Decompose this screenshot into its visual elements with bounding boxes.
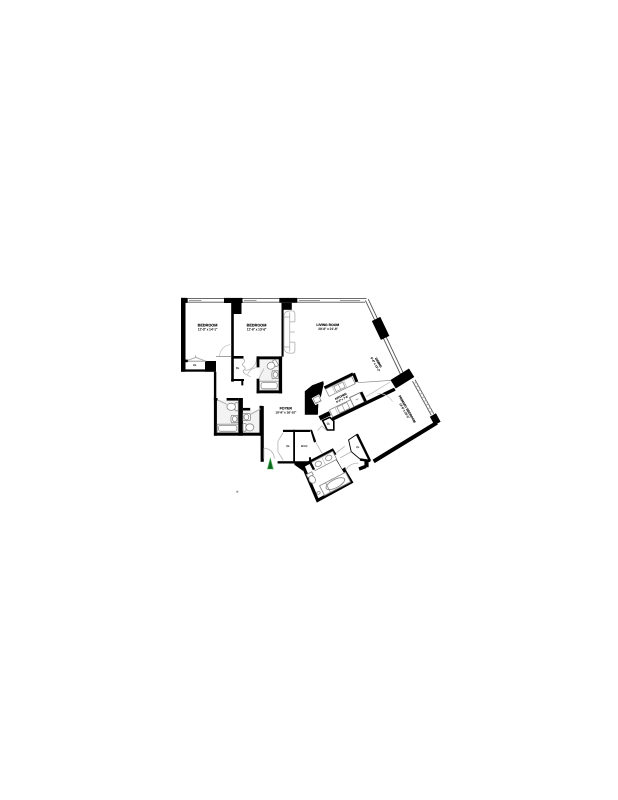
svg-text:20'-6" x 21'-6": 20'-6" x 21'-6" xyxy=(318,327,338,331)
svg-text:CL: CL xyxy=(236,367,240,370)
svg-text:12'-0" x 14'-1": 12'-0" x 14'-1" xyxy=(198,327,218,331)
svg-text:10'-8" x 16'-10": 10'-8" x 16'-10" xyxy=(275,411,296,415)
svg-text:CL: CL xyxy=(193,364,197,367)
svg-text:W.I.C: W.I.C xyxy=(301,445,307,448)
svg-text:12'-6" x 13'-6": 12'-6" x 13'-6" xyxy=(247,327,267,331)
svg-text:CL: CL xyxy=(286,445,290,448)
